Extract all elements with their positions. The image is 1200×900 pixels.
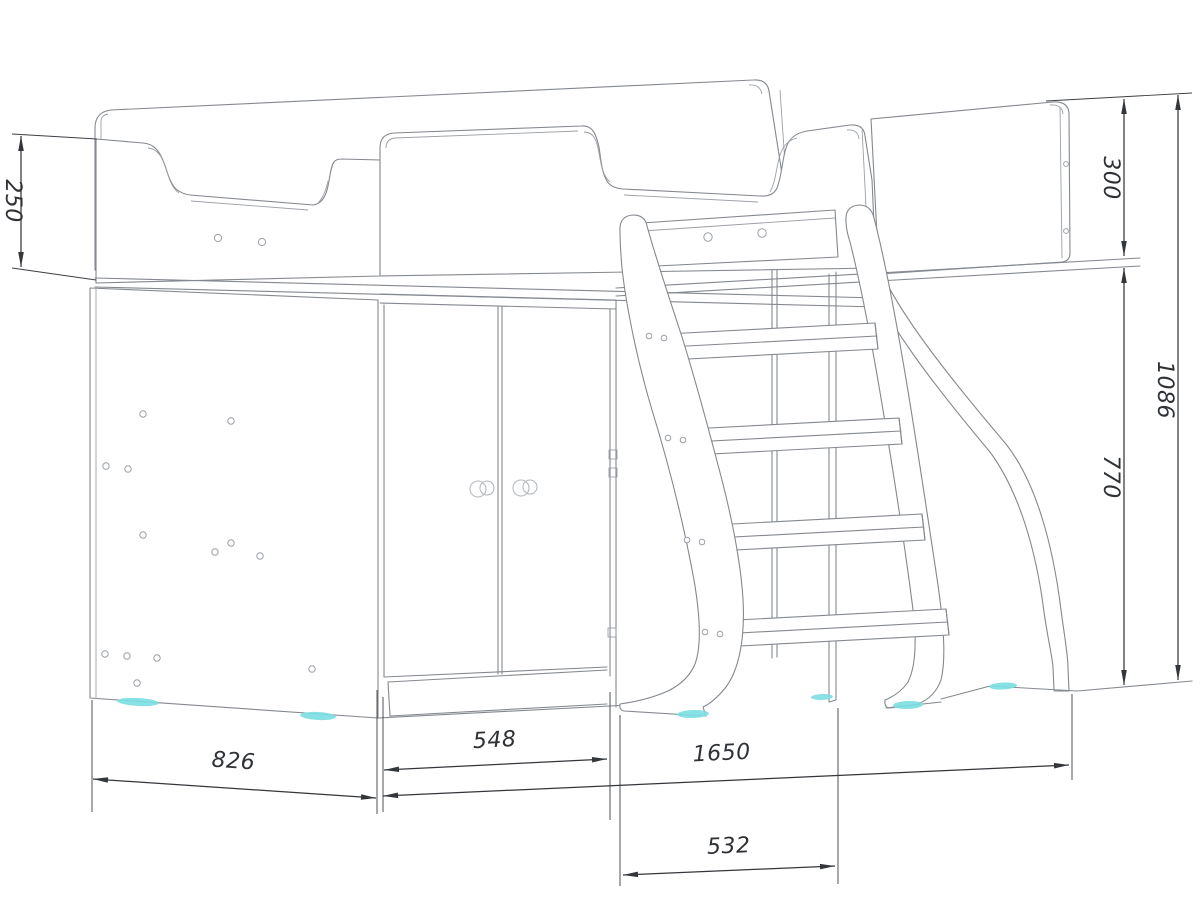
dimension-300: 300 — [1098, 99, 1124, 256]
dimension-770: 770 — [1098, 268, 1124, 685]
left-side-panel — [90, 288, 378, 718]
dimension-label-250: 250 — [0, 179, 25, 223]
wardrobe — [380, 294, 617, 716]
underbed-post — [772, 261, 777, 658]
dimension-826: 826 — [93, 748, 376, 798]
ladder-step — [666, 323, 878, 360]
door-knobs — [470, 480, 537, 497]
dimension-532: 532 — [623, 833, 835, 875]
dimension-label-770: 770 — [1098, 455, 1123, 499]
bed-side-panel-right — [871, 102, 1070, 274]
dimension-548: 548 — [384, 727, 607, 770]
dimension-label-1650: 1650 — [692, 740, 751, 768]
dimension-1086: 1086 — [1152, 95, 1178, 680]
ladder-step — [690, 418, 902, 455]
ladder-step — [713, 514, 925, 551]
dimension-label-826: 826 — [211, 748, 256, 776]
dimension-label-532: 532 — [706, 833, 751, 860]
wardrobe-doors — [384, 300, 617, 707]
ladder — [620, 205, 949, 716]
dimension-label-548: 548 — [472, 727, 517, 754]
dimension-label-1086: 1086 — [1152, 361, 1177, 419]
wardrobe-plinth — [388, 670, 607, 716]
loft-bed-drawing: 250 300 770 1086 826 548 1650 532 — [0, 0, 1200, 900]
dimension-250: 250 — [0, 136, 25, 267]
dimension-label-300: 300 — [1098, 156, 1123, 200]
technical-drawing-page: 250 300 770 1086 826 548 1650 532 — [0, 0, 1200, 900]
floor-lines — [378, 681, 1192, 718]
